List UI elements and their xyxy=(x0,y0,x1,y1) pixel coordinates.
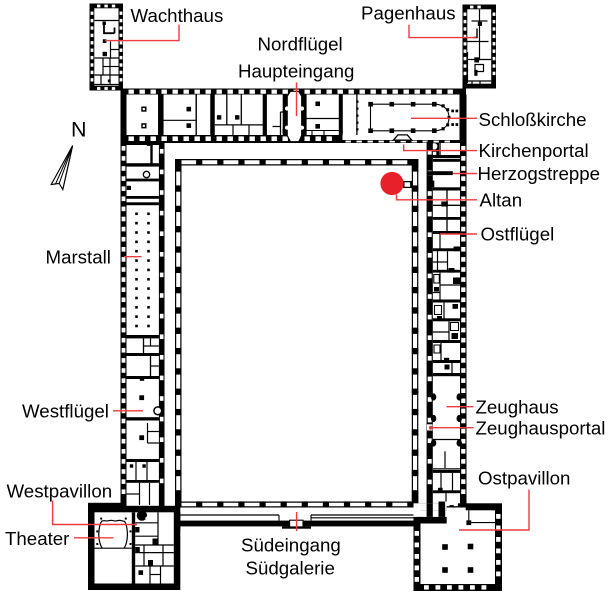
svg-text:Wachthaus: Wachthaus xyxy=(131,5,224,26)
svg-text:Pagenhaus: Pagenhaus xyxy=(361,3,456,24)
svg-text:Haupteingang: Haupteingang xyxy=(238,61,354,82)
svg-text:Südeingang: Südeingang xyxy=(241,535,341,556)
svg-text:Marstall: Marstall xyxy=(46,246,111,267)
svg-text:Westflügel: Westflügel xyxy=(22,400,109,421)
svg-text:Südgalerie: Südgalerie xyxy=(246,558,335,579)
svg-text:Ostflügel: Ostflügel xyxy=(481,224,555,245)
svg-text:Herzogstreppe: Herzogstreppe xyxy=(478,163,601,184)
svg-text:N: N xyxy=(71,118,87,142)
svg-text:Altan: Altan xyxy=(480,189,523,210)
svg-text:Zeughaus: Zeughaus xyxy=(476,396,559,417)
svg-text:Schloßkirche: Schloßkirche xyxy=(479,109,587,130)
svg-text:Theater: Theater xyxy=(5,528,69,549)
svg-text:Kirchenportal: Kirchenportal xyxy=(479,140,589,161)
svg-text:Nordflügel: Nordflügel xyxy=(258,34,343,55)
svg-text:Ostpavillon: Ostpavillon xyxy=(478,468,570,489)
svg-text:Westpavillon: Westpavillon xyxy=(7,481,113,502)
svg-text:Zeughausportal: Zeughausportal xyxy=(476,417,606,438)
